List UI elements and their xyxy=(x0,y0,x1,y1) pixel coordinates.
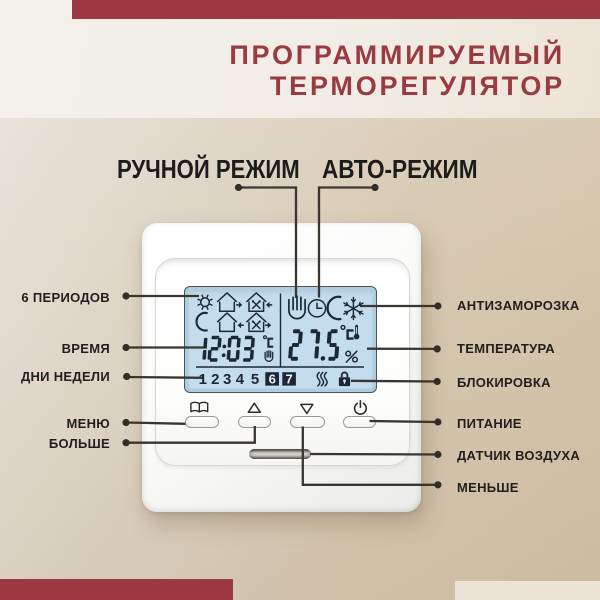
svg-text:7: 7 xyxy=(285,371,292,386)
svg-text:3: 3 xyxy=(223,371,231,388)
svg-text:4: 4 xyxy=(236,371,245,388)
svg-text:6: 6 xyxy=(269,371,276,386)
svg-text:1: 1 xyxy=(199,371,207,388)
svg-text:5: 5 xyxy=(251,371,259,388)
svg-text:2: 2 xyxy=(211,371,219,388)
